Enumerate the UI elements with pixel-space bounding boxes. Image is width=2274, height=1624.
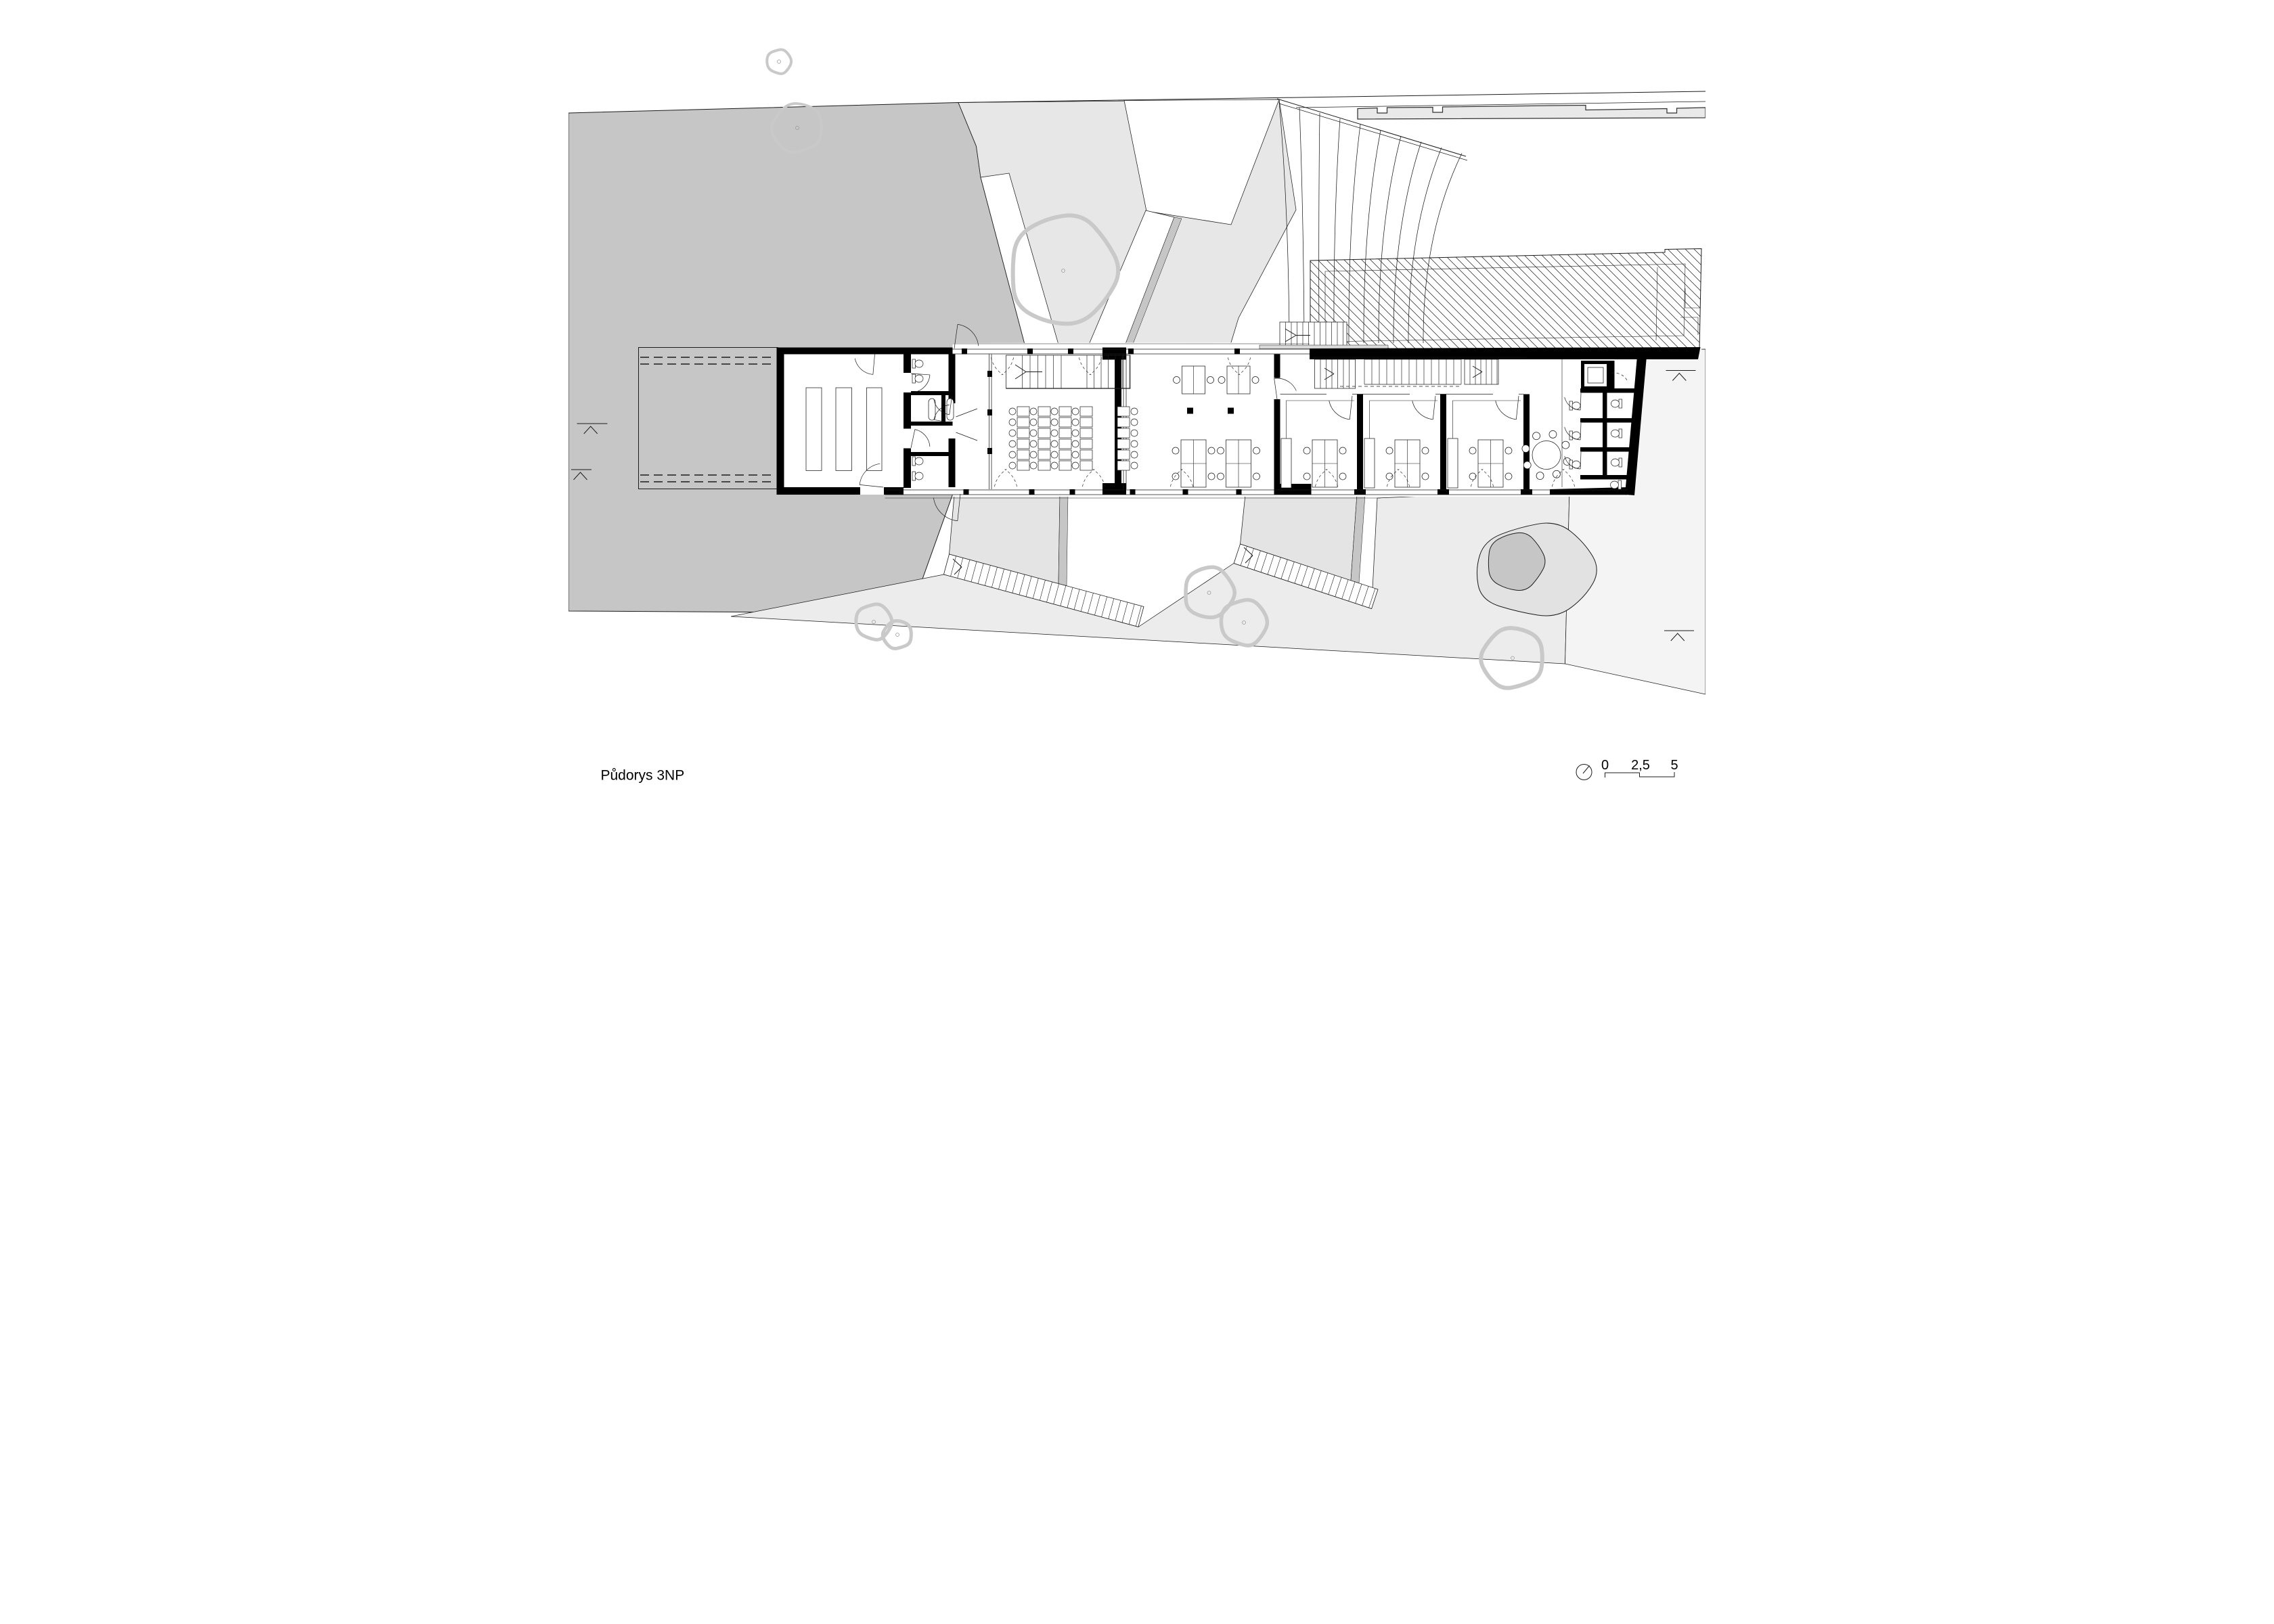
wall xyxy=(949,438,956,487)
neighbor-building-strip xyxy=(1358,106,1705,120)
chair xyxy=(1172,473,1179,480)
chair xyxy=(1208,473,1215,480)
chair xyxy=(1174,377,1180,384)
desk-cluster xyxy=(1312,440,1337,487)
scale-label-0: 0 xyxy=(1601,758,1609,773)
shelf xyxy=(806,388,822,471)
wall-desk xyxy=(1364,438,1375,488)
wc-fixture xyxy=(1611,458,1622,467)
wall xyxy=(1603,393,1607,476)
chair xyxy=(1505,473,1512,480)
site-boundary xyxy=(958,91,1705,103)
desk-pair xyxy=(1182,366,1205,394)
chair xyxy=(1253,473,1260,480)
chair xyxy=(1339,473,1346,480)
terrace-1-edge xyxy=(1058,495,1068,586)
chair xyxy=(1339,447,1346,454)
wall xyxy=(941,395,945,422)
wall xyxy=(1610,361,1615,388)
wall xyxy=(1580,475,1631,480)
wall xyxy=(911,452,953,456)
chair xyxy=(1207,377,1214,384)
scale-bar xyxy=(1605,772,1675,777)
wall xyxy=(884,487,904,495)
desk-pair xyxy=(1227,366,1250,394)
wall xyxy=(1102,483,1126,495)
wc-fixture xyxy=(1611,480,1622,489)
wall xyxy=(777,348,953,355)
shelf xyxy=(836,388,852,471)
scale-label-25: 2,5 xyxy=(1631,758,1650,773)
wall xyxy=(904,392,911,429)
chair xyxy=(1386,447,1393,454)
wall xyxy=(1523,394,1530,491)
wall xyxy=(904,355,911,374)
wall xyxy=(949,355,956,404)
wc-fixture xyxy=(912,457,923,466)
wall xyxy=(1440,394,1446,491)
wc-fixture xyxy=(1611,429,1622,438)
wall xyxy=(1357,394,1363,491)
north-arrow-needle xyxy=(1583,766,1590,774)
desk-cluster xyxy=(1478,440,1503,487)
wc-fixture xyxy=(912,472,923,480)
chair xyxy=(1422,447,1429,454)
chair xyxy=(1469,447,1476,454)
column xyxy=(1187,408,1193,414)
wall xyxy=(911,391,953,395)
shelf xyxy=(867,388,883,471)
wall xyxy=(1580,388,1635,393)
chair xyxy=(1505,447,1512,454)
chair xyxy=(1303,447,1310,454)
chair xyxy=(1422,473,1429,480)
chair xyxy=(1469,473,1476,480)
wall xyxy=(777,348,784,495)
stair-rail xyxy=(1277,99,1466,156)
wc-fixture xyxy=(1611,399,1622,408)
wall xyxy=(1274,399,1280,490)
wall xyxy=(904,449,911,489)
chair xyxy=(1218,377,1225,384)
stair-run xyxy=(1280,322,1347,348)
sill xyxy=(1259,345,1388,349)
round-table xyxy=(1532,441,1561,470)
wall xyxy=(1274,484,1312,495)
column xyxy=(1228,408,1234,414)
chair xyxy=(1172,447,1179,454)
scale-label-5: 5 xyxy=(1670,758,1678,773)
floor-plan-page: Půdorys 3NP 0 2,5 5 xyxy=(568,0,1705,812)
tree xyxy=(767,49,791,74)
desk-cluster xyxy=(1226,440,1251,487)
chair xyxy=(1253,447,1260,454)
chair xyxy=(1303,473,1310,480)
chair xyxy=(1208,447,1215,454)
desk-cluster xyxy=(1181,440,1206,487)
wall xyxy=(1274,355,1280,378)
plan-title: Půdorys 3NP xyxy=(601,768,685,784)
wc-fixture xyxy=(912,359,923,368)
chair xyxy=(1218,447,1224,454)
chair xyxy=(1252,377,1259,384)
chair xyxy=(1218,473,1224,480)
wall-desk xyxy=(1281,438,1291,488)
annotations xyxy=(1576,765,1674,780)
wall xyxy=(777,487,861,495)
floor-plan-drawing: Půdorys 3NP 0 2,5 5 xyxy=(568,0,1705,812)
wall-desk xyxy=(1448,438,1458,488)
wc-fixture xyxy=(912,374,923,383)
